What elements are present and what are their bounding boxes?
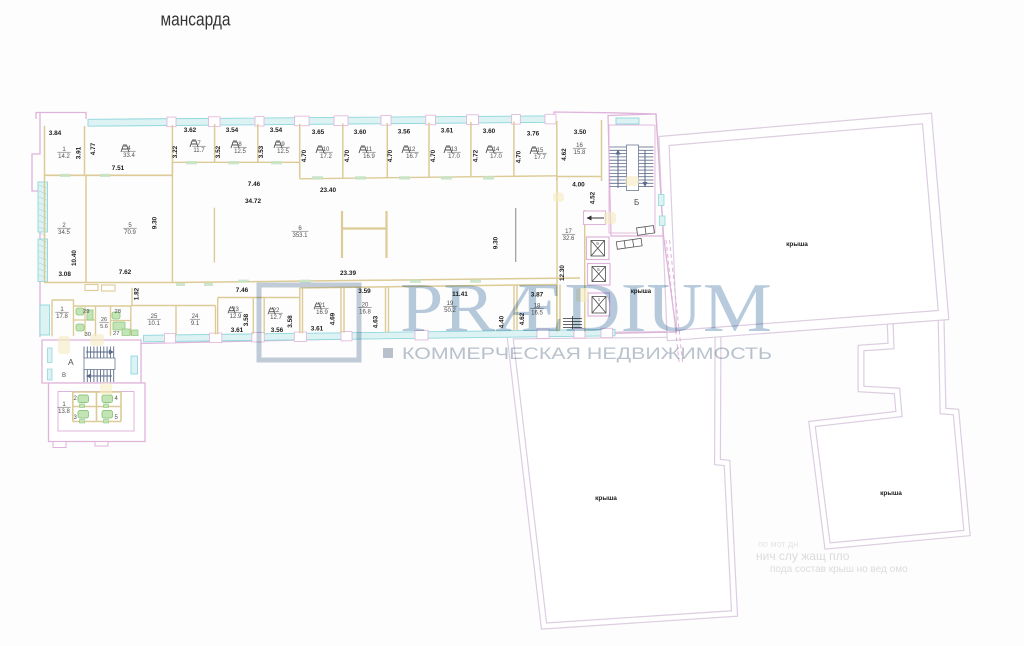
svg-text:23.39: 23.39 bbox=[340, 270, 356, 277]
svg-text:3.54: 3.54 bbox=[226, 127, 239, 134]
svg-text:34.5: 34.5 bbox=[58, 230, 70, 236]
svg-text:7.51: 7.51 bbox=[112, 165, 125, 172]
svg-text:мансарда: мансарда bbox=[161, 10, 232, 30]
svg-text:4.69: 4.69 bbox=[330, 312, 337, 325]
svg-text:В: В bbox=[62, 373, 66, 379]
svg-text:3.58: 3.58 bbox=[287, 315, 294, 328]
svg-text:12.5: 12.5 bbox=[277, 149, 289, 155]
svg-text:3.08: 3.08 bbox=[58, 271, 71, 278]
svg-text:17.8: 17.8 bbox=[56, 314, 68, 320]
svg-text:4.70: 4.70 bbox=[344, 149, 351, 162]
svg-text:PRÆDIUM: PRÆDIUM bbox=[400, 270, 772, 347]
svg-text:16: 16 bbox=[576, 143, 583, 149]
svg-text:3.50: 3.50 bbox=[574, 129, 587, 136]
svg-text:32.6: 32.6 bbox=[563, 236, 575, 242]
svg-text:7.46: 7.46 bbox=[248, 181, 261, 188]
svg-text:23.40: 23.40 bbox=[320, 187, 336, 194]
svg-text:28: 28 bbox=[115, 309, 121, 315]
svg-text:3.61: 3.61 bbox=[441, 128, 454, 135]
svg-text:17.2: 17.2 bbox=[320, 154, 332, 160]
svg-text:4.70: 4.70 bbox=[430, 149, 437, 162]
svg-text:24: 24 bbox=[192, 314, 199, 320]
svg-text:16.7: 16.7 bbox=[406, 154, 418, 160]
svg-text:3.61: 3.61 bbox=[231, 327, 244, 334]
svg-text:4.72: 4.72 bbox=[473, 149, 480, 162]
svg-text:А: А bbox=[68, 357, 74, 367]
svg-text:11.7: 11.7 bbox=[193, 148, 205, 154]
svg-text:4.52: 4.52 bbox=[590, 191, 597, 204]
svg-text:по мот дн: по мот дн bbox=[758, 539, 798, 549]
svg-text:12.9: 12.9 bbox=[230, 314, 242, 320]
svg-text:3.56: 3.56 bbox=[398, 129, 411, 136]
svg-text:27: 27 bbox=[113, 331, 119, 337]
svg-text:16.9: 16.9 bbox=[316, 310, 328, 316]
svg-text:70.9: 70.9 bbox=[124, 230, 136, 236]
svg-text:3.62: 3.62 bbox=[184, 127, 197, 134]
svg-text:4.00: 4.00 bbox=[572, 182, 585, 189]
svg-text:15.8: 15.8 bbox=[574, 150, 586, 156]
svg-text:3.65: 3.65 bbox=[312, 129, 325, 136]
svg-text:30: 30 bbox=[85, 332, 91, 338]
svg-text:13.8: 13.8 bbox=[58, 409, 70, 415]
svg-text:3.22: 3.22 bbox=[172, 145, 179, 158]
svg-text:пода состав крыш но вед: пода состав крыш но вед омо bbox=[770, 564, 908, 575]
svg-text:16.9: 16.9 bbox=[363, 154, 375, 160]
svg-text:крыша: крыша bbox=[595, 495, 617, 502]
svg-text:1.82: 1.82 bbox=[134, 287, 141, 300]
svg-text:3.91: 3.91 bbox=[76, 146, 83, 159]
svg-text:4.62: 4.62 bbox=[561, 148, 568, 161]
svg-text:10.40: 10.40 bbox=[71, 250, 78, 266]
svg-text:17.0: 17.0 bbox=[490, 154, 502, 160]
svg-text:12.5: 12.5 bbox=[234, 149, 246, 155]
svg-text:14.2: 14.2 bbox=[58, 154, 70, 160]
svg-text:33.4: 33.4 bbox=[123, 153, 135, 159]
svg-text:3.60: 3.60 bbox=[354, 129, 367, 136]
svg-text:нич слу жащ пло: нич слу жащ пло bbox=[756, 549, 850, 563]
svg-text:9.30: 9.30 bbox=[492, 236, 499, 249]
svg-text:крыша: крыша bbox=[786, 241, 808, 248]
svg-text:3.56: 3.56 bbox=[271, 327, 284, 334]
svg-text:25: 25 bbox=[151, 314, 158, 320]
svg-text:4.63: 4.63 bbox=[373, 315, 380, 328]
svg-text:17.0: 17.0 bbox=[448, 154, 460, 160]
svg-text:17.7: 17.7 bbox=[534, 155, 546, 161]
svg-text:10.1: 10.1 bbox=[148, 321, 160, 327]
svg-text:3.84: 3.84 bbox=[49, 130, 62, 137]
svg-text:3.61: 3.61 bbox=[311, 326, 324, 333]
svg-text:7.46: 7.46 bbox=[236, 287, 249, 294]
svg-text:26: 26 bbox=[101, 317, 107, 323]
svg-text:3.53: 3.53 bbox=[258, 145, 265, 158]
svg-text:9.1: 9.1 bbox=[191, 321, 200, 327]
svg-text:Б: Б bbox=[634, 198, 639, 207]
svg-text:20: 20 bbox=[362, 302, 369, 308]
svg-text:9.30: 9.30 bbox=[152, 216, 159, 229]
svg-text:КОММЕРЧЕСКАЯ НЕДВИЖИМОСТЬ: КОММЕРЧЕСКАЯ НЕДВИЖИМОСТЬ bbox=[402, 344, 772, 363]
svg-text:4.70: 4.70 bbox=[387, 149, 394, 162]
svg-text:17: 17 bbox=[565, 229, 572, 235]
svg-text:3.54: 3.54 bbox=[270, 127, 283, 134]
svg-text:4.70: 4.70 bbox=[301, 149, 308, 162]
svg-text:3.58: 3.58 bbox=[243, 313, 250, 326]
svg-text:29: 29 bbox=[83, 309, 89, 315]
svg-text:3.60: 3.60 bbox=[483, 128, 496, 135]
svg-text:5.6: 5.6 bbox=[100, 324, 108, 330]
svg-text:4.77: 4.77 bbox=[90, 142, 97, 155]
svg-text:34.72: 34.72 bbox=[245, 198, 261, 205]
svg-text:3.76: 3.76 bbox=[527, 131, 540, 138]
svg-text:7.62: 7.62 bbox=[119, 269, 132, 276]
svg-text:4.70: 4.70 bbox=[516, 150, 523, 163]
svg-text:крыша: крыша bbox=[880, 490, 902, 497]
svg-text:3.52: 3.52 bbox=[215, 145, 222, 158]
svg-text:12.7: 12.7 bbox=[270, 315, 282, 321]
svg-text:353.1: 353.1 bbox=[292, 233, 308, 239]
